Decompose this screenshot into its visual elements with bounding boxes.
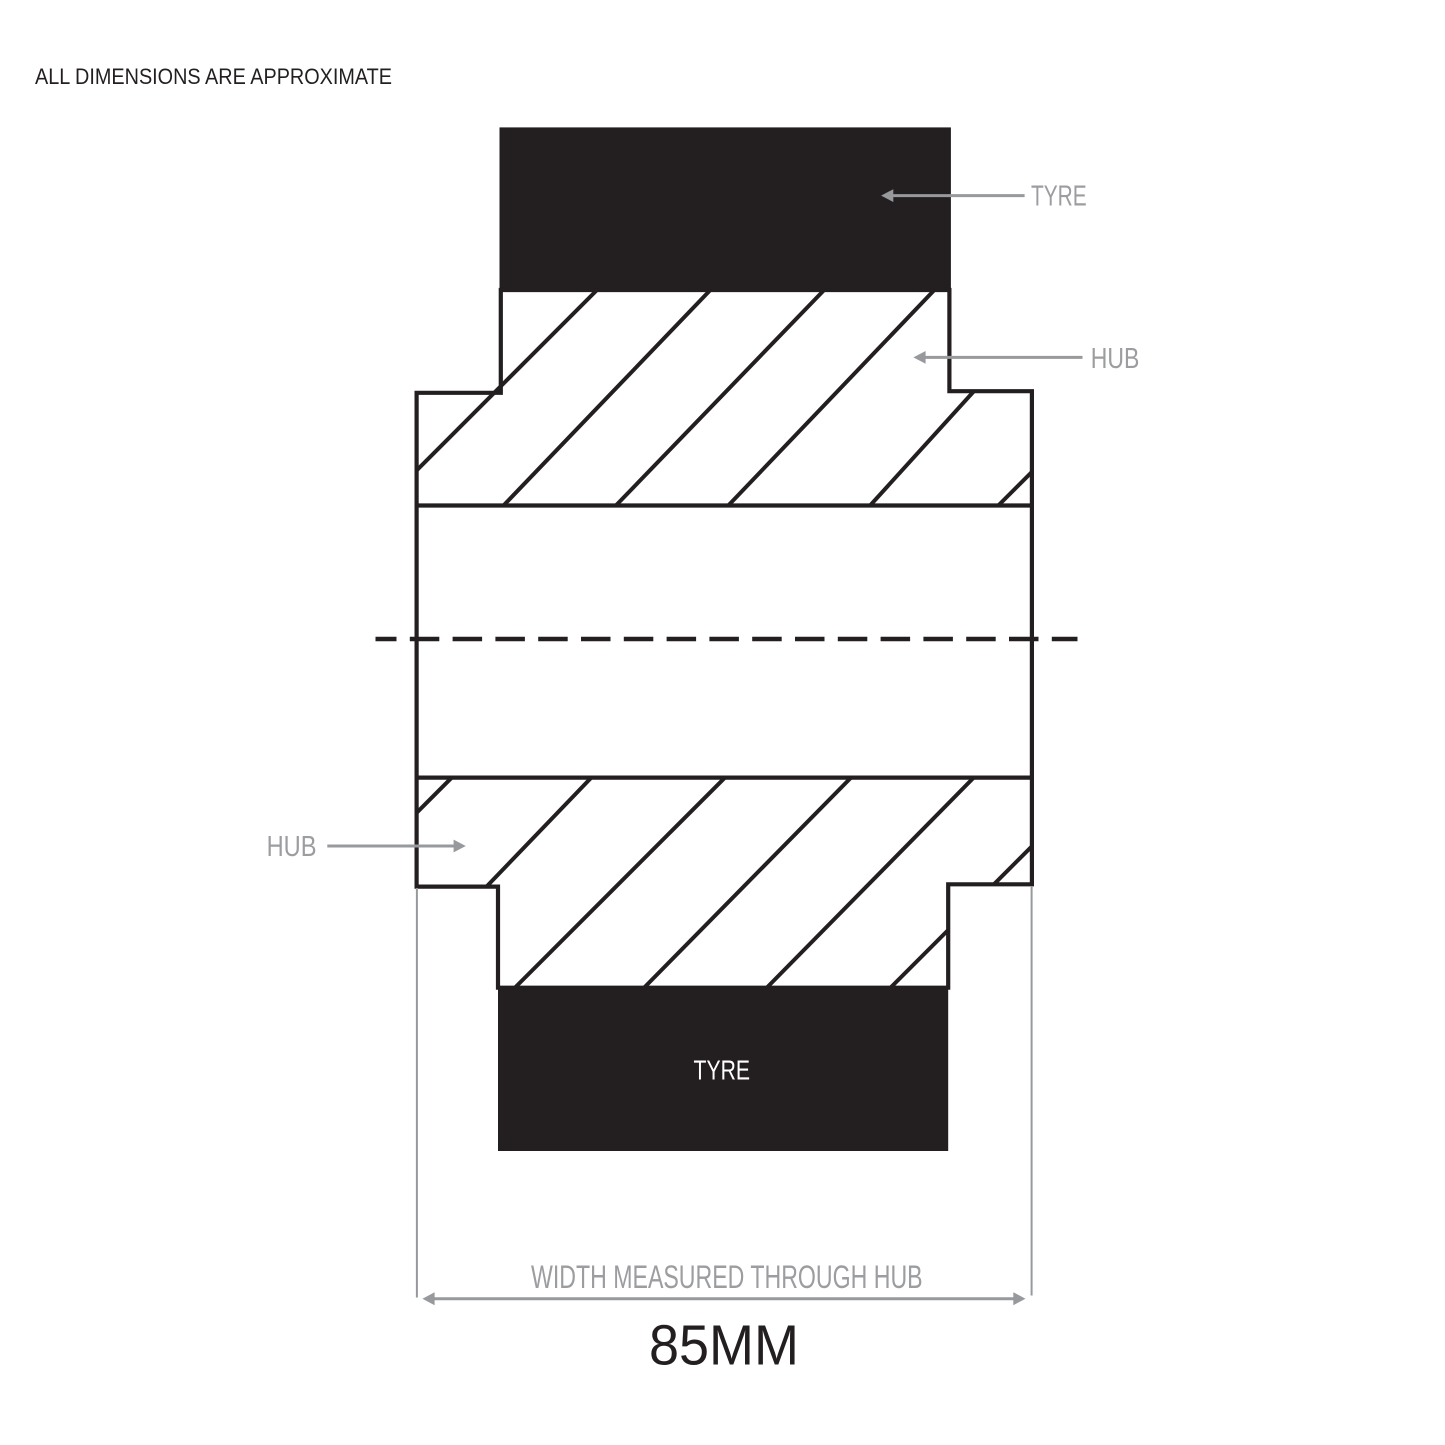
svg-text:WIDTH MEASURED THROUGH HUB: WIDTH MEASURED THROUGH HUB bbox=[531, 1259, 923, 1295]
svg-text:TYRE: TYRE bbox=[694, 1054, 751, 1085]
svg-text:ALL DIMENSIONS ARE APPROXIMATE: ALL DIMENSIONS ARE APPROXIMATE bbox=[35, 64, 392, 89]
svg-text:HUB: HUB bbox=[267, 831, 317, 863]
svg-text:HUB: HUB bbox=[1091, 343, 1140, 375]
svg-text:85MM: 85MM bbox=[649, 1314, 799, 1378]
svg-text:TYRE: TYRE bbox=[1031, 180, 1087, 212]
